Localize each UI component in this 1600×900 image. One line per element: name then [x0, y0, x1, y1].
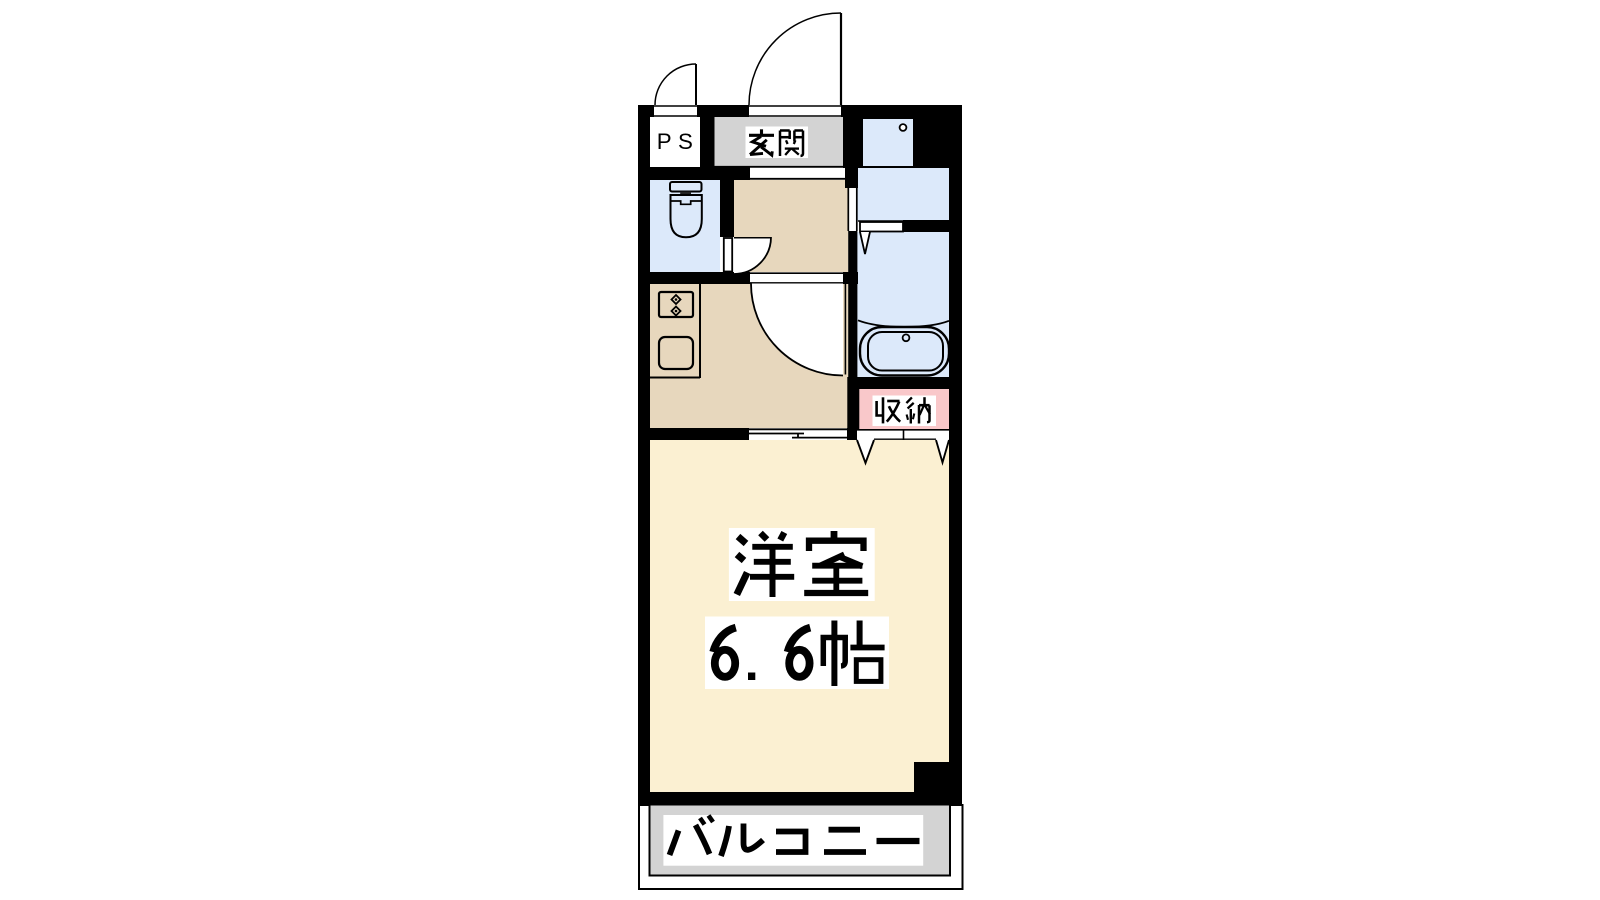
svg-text:S: S	[678, 129, 693, 154]
svg-text:P: P	[657, 129, 672, 154]
